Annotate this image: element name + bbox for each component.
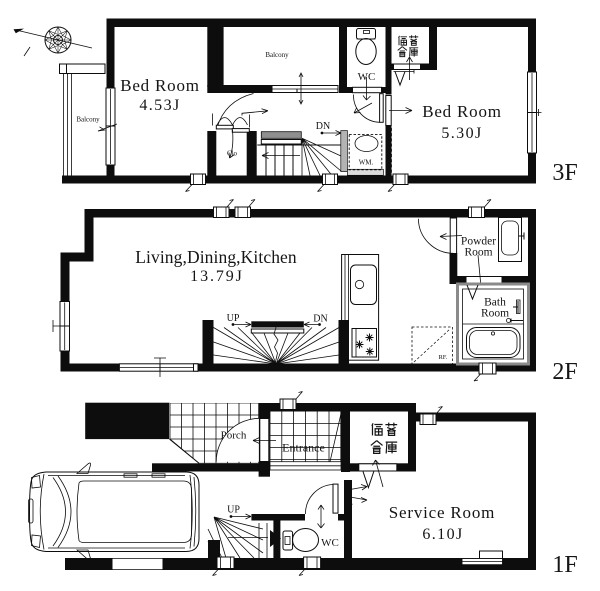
svg-text:Porch: Porch <box>221 430 247 442</box>
svg-text:Bed Room: Bed Room <box>422 102 502 121</box>
svg-text:DN: DN <box>316 121 330 132</box>
svg-text:2F: 2F <box>552 359 577 385</box>
svg-text:Living,Dining,Kitchen: Living,Dining,Kitchen <box>135 247 297 267</box>
svg-text:13.79J: 13.79J <box>190 268 244 285</box>
svg-text:Clo: Clo <box>227 150 238 158</box>
svg-text:3F: 3F <box>552 160 577 186</box>
svg-text:Balcony: Balcony <box>76 116 100 124</box>
svg-text:DN: DN <box>313 314 327 325</box>
svg-text:Service Room: Service Room <box>389 503 495 522</box>
svg-text:UP: UP <box>227 313 240 324</box>
svg-text:Balcony: Balcony <box>265 51 289 59</box>
svg-text:Bed Room: Bed Room <box>120 76 200 95</box>
svg-text:WC: WC <box>321 537 339 549</box>
svg-text:WC: WC <box>358 71 376 83</box>
svg-text:UP: UP <box>227 505 240 516</box>
svg-text:Room: Room <box>481 308 509 320</box>
svg-text:1F: 1F <box>552 552 577 578</box>
svg-text:5.30J: 5.30J <box>441 125 482 142</box>
svg-text:WM.: WM. <box>359 159 374 167</box>
svg-text:6.10J: 6.10J <box>422 526 463 543</box>
svg-text:Entrance: Entrance <box>282 441 325 455</box>
svg-text:RF.: RF. <box>438 354 447 361</box>
svg-text:4.53J: 4.53J <box>139 97 180 114</box>
